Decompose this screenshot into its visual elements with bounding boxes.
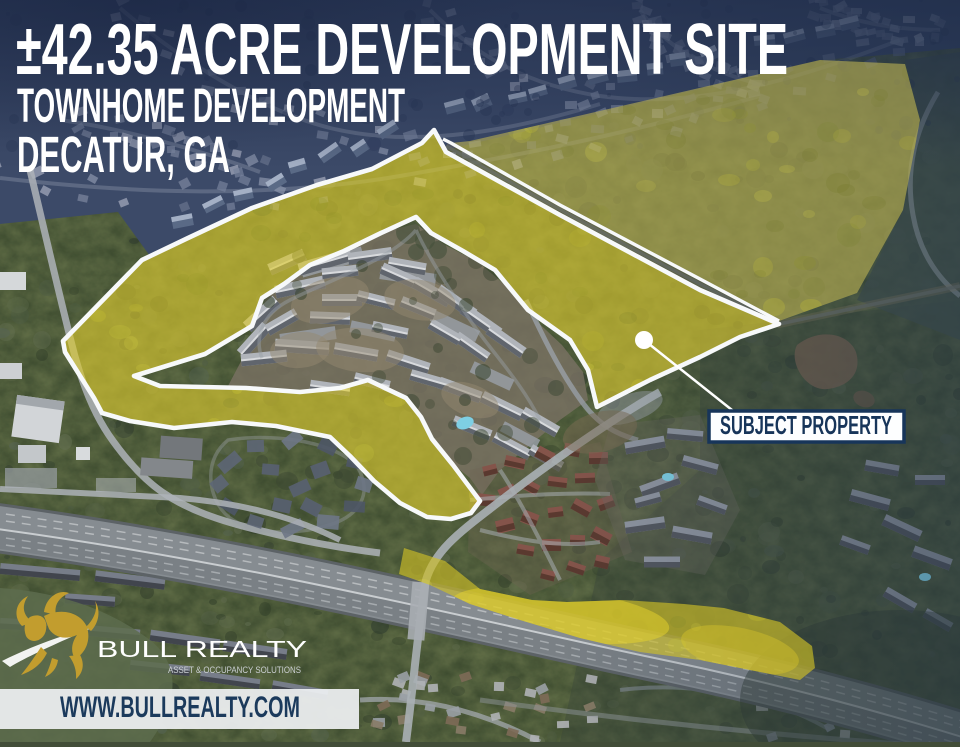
svg-text:DECATUR, GA: DECATUR, GA [17,126,230,183]
svg-text:WWW.BULLREALTY.COM: WWW.BULLREALTY.COM [60,691,300,724]
svg-text:BULL REALTY: BULL REALTY [97,636,307,662]
svg-text:±42.35 ACRE DEVELOPMENT SITE: ±42.35 ACRE DEVELOPMENT SITE [16,10,788,90]
svg-text:SUBJECT PROPERTY: SUBJECT PROPERTY [720,410,892,440]
svg-text:ASSET & OCCUPANCY SOLUTIONS: ASSET & OCCUPANCY SOLUTIONS [168,665,301,675]
